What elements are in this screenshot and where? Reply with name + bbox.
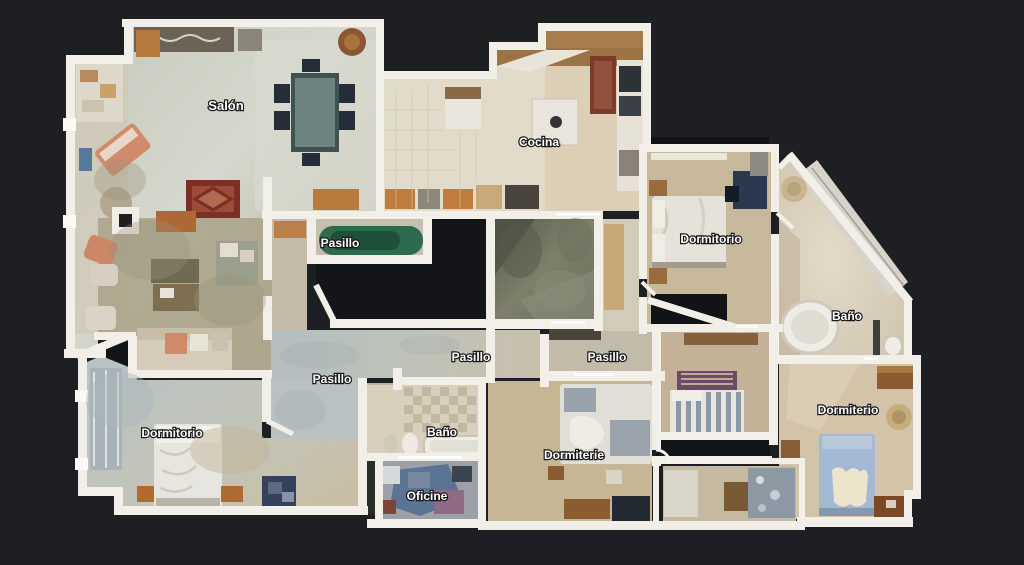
svg-text:Pasillo: Pasillo — [452, 350, 491, 364]
svg-text:Pasillo: Pasillo — [321, 236, 360, 250]
svg-text:Salón: Salón — [208, 98, 243, 113]
svg-text:Oficine: Oficine — [407, 489, 448, 503]
svg-text:Baño: Baño — [427, 425, 457, 439]
svg-text:Pasillo: Pasillo — [588, 350, 627, 364]
svg-text:Dormitorio: Dormitorio — [141, 426, 202, 440]
svg-text:Dormiterio: Dormiterio — [818, 403, 879, 417]
svg-text:Dormitorio: Dormitorio — [680, 232, 741, 246]
svg-text:Cocina: Cocina — [519, 135, 559, 149]
svg-text:Baño: Baño — [832, 309, 862, 323]
svg-text:Pasillo: Pasillo — [313, 372, 352, 386]
svg-text:Dormiterie: Dormiterie — [544, 448, 604, 462]
